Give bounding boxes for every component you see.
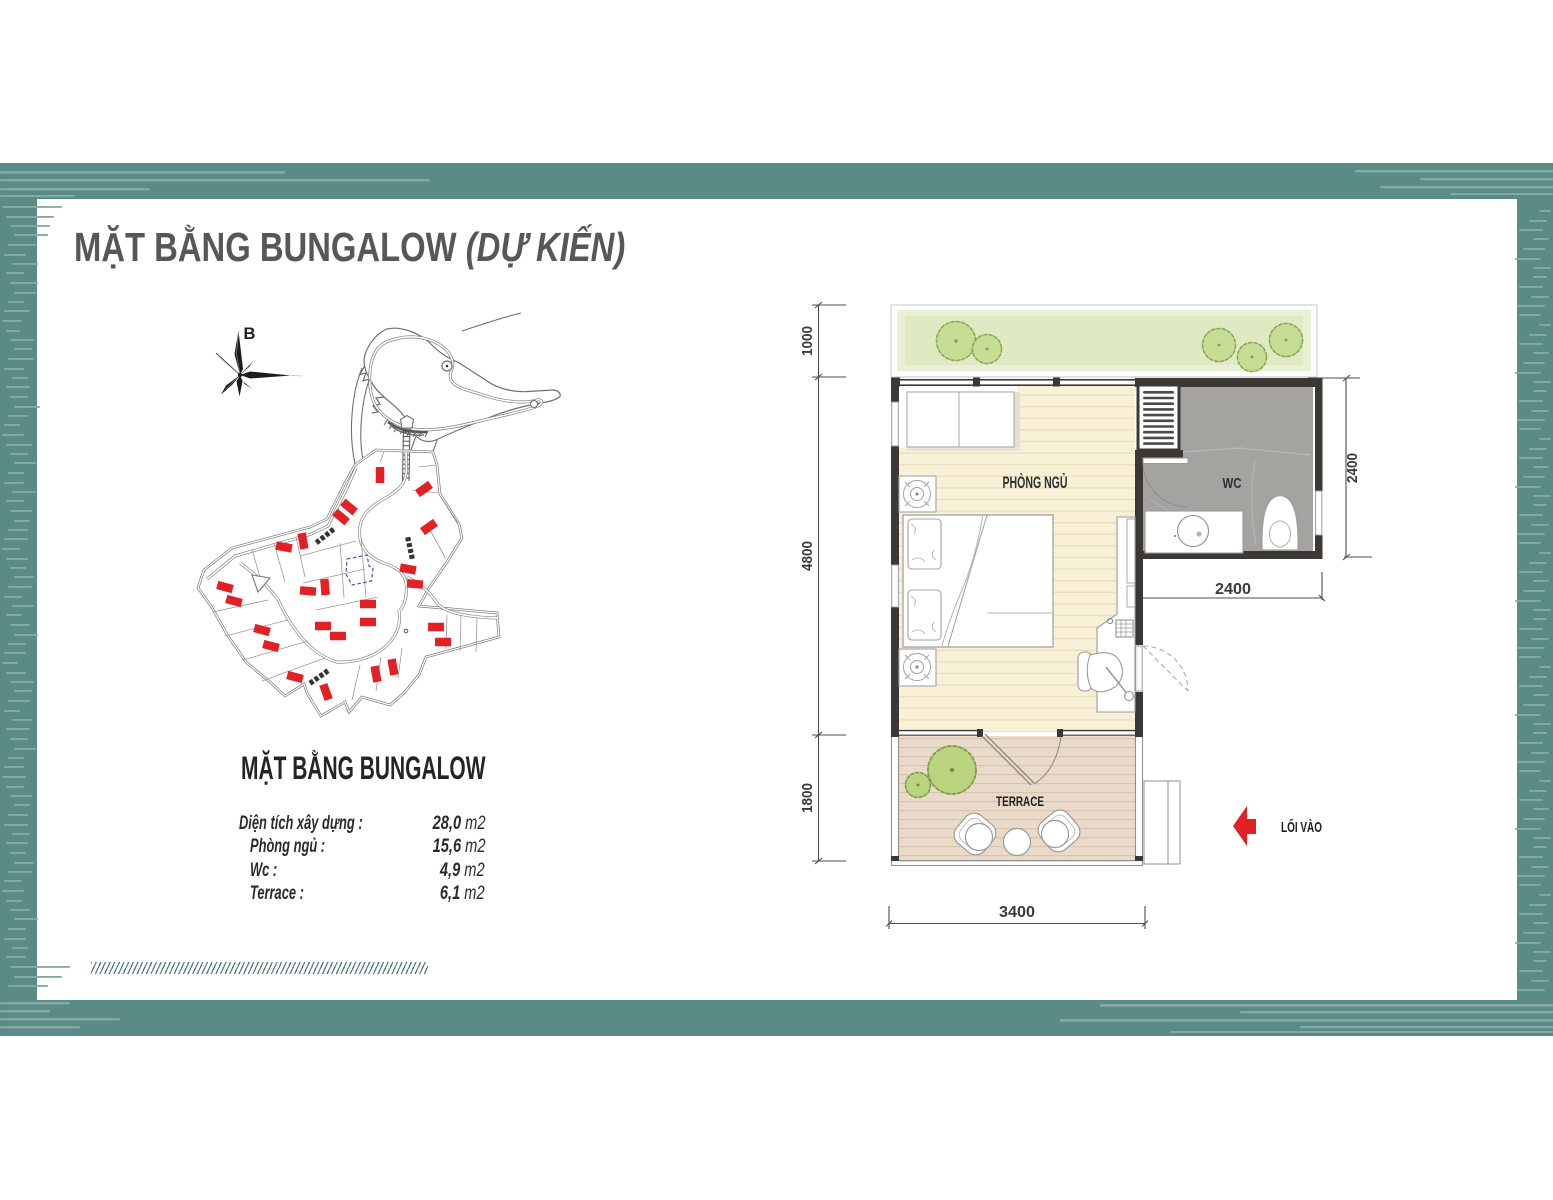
svg-text:1800: 1800 bbox=[800, 783, 816, 813]
svg-text:2400: 2400 bbox=[1215, 581, 1251, 598]
svg-text:2400: 2400 bbox=[1345, 453, 1361, 483]
svg-text:1000: 1000 bbox=[800, 326, 816, 356]
svg-text:TERRACE: TERRACE bbox=[996, 793, 1044, 809]
svg-text:3400: 3400 bbox=[999, 904, 1035, 921]
svg-text:4800: 4800 bbox=[800, 541, 816, 571]
svg-text:WC: WC bbox=[1223, 475, 1242, 492]
svg-text:B: B bbox=[244, 325, 256, 343]
svg-text:LỐI VÀO: LỐI VÀO bbox=[1281, 818, 1322, 836]
svg-text:PHÒNG NGỦ: PHÒNG NGỦ bbox=[1003, 473, 1068, 492]
